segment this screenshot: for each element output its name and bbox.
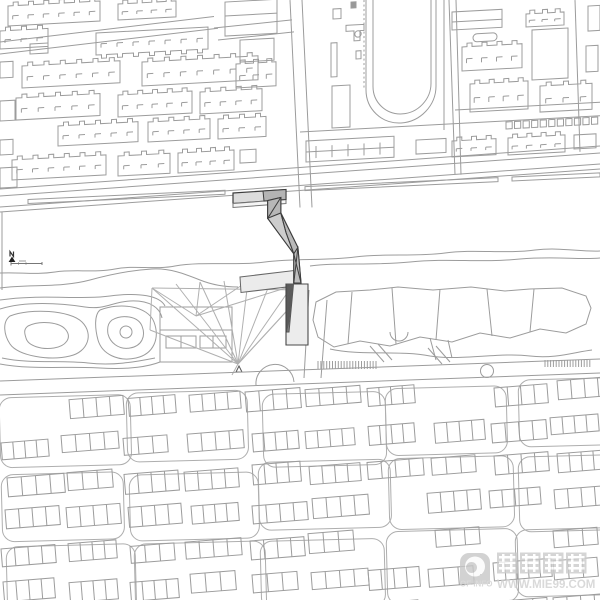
- svg-text:OF INFO: OF INFO: [460, 580, 492, 589]
- svg-text:WWW.MIE99.COM: WWW.MIE99.COM: [497, 579, 595, 591]
